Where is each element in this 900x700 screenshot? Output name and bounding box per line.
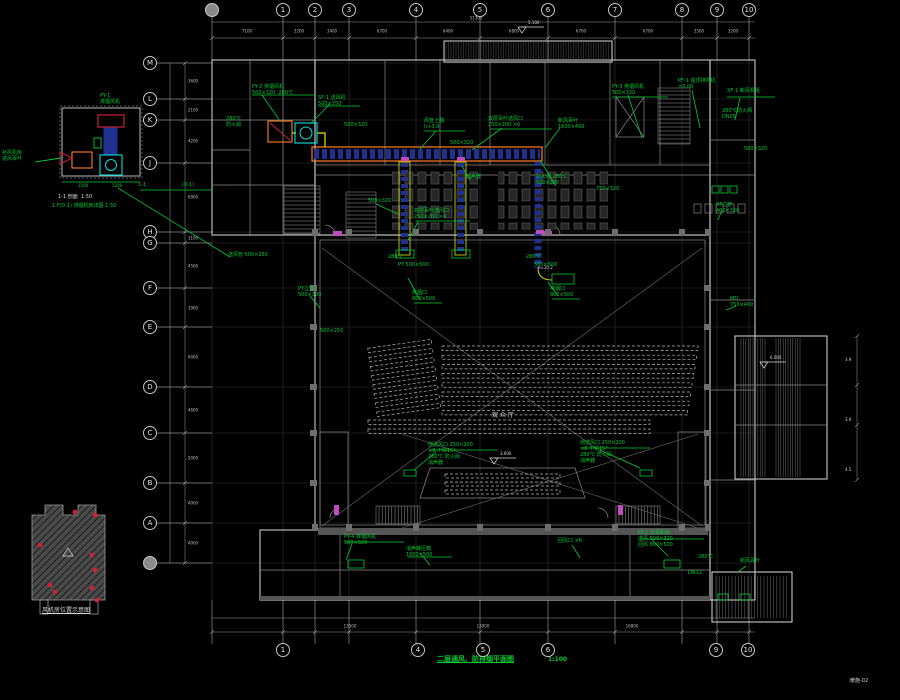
structural-columns	[310, 229, 711, 531]
dimension-lines	[170, 22, 859, 634]
interior-partitions	[212, 60, 827, 600]
level-mark-symbols	[490, 27, 786, 464]
fan-room-detail	[35, 106, 142, 182]
floor-plan-drawing	[0, 0, 900, 700]
cad-viewport: 二层通风、防排烟平面图 1:100 暖施-02 风机房位置示意图 补风机房 进风…	[0, 0, 900, 700]
toilet-fixtures	[694, 204, 745, 213]
auditorium-seating-rows	[368, 339, 698, 494]
axis-grid-lines	[156, 16, 755, 644]
key-locator-plan	[32, 505, 105, 614]
